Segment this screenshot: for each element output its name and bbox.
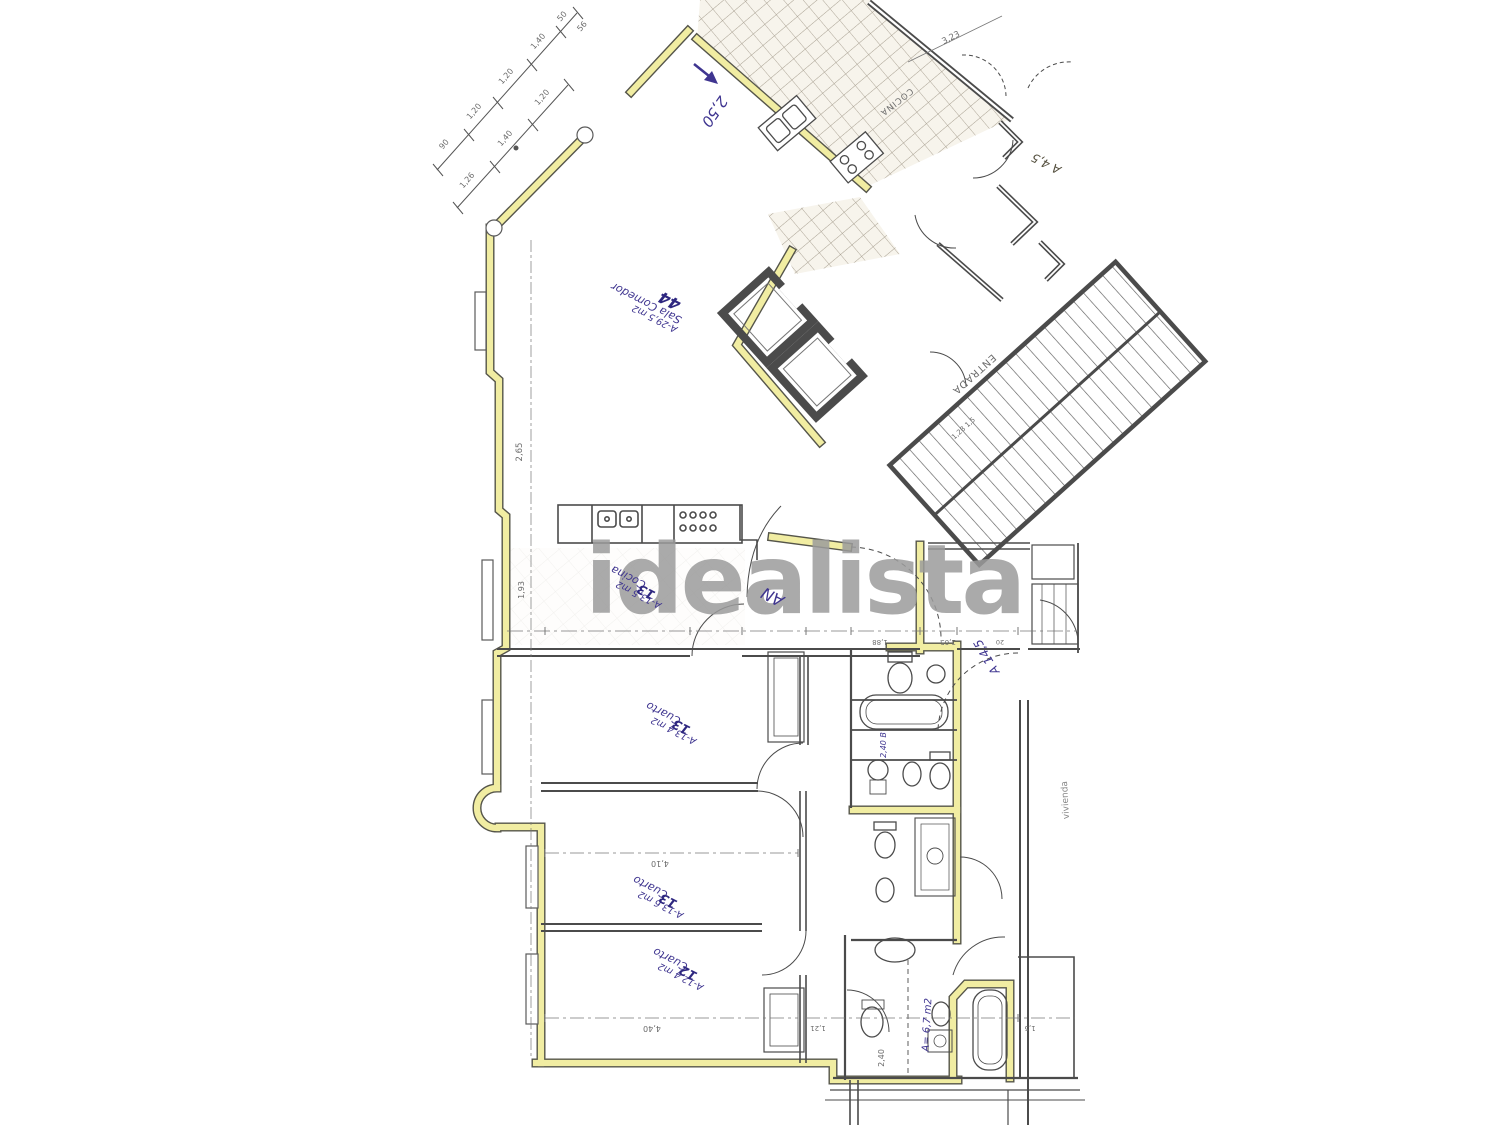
dim-410: 4,10	[651, 859, 669, 868]
chain-dim: 1,20	[465, 102, 483, 121]
bidet-icon	[932, 1002, 950, 1026]
bath-area-annotation: A= 6,7 m2	[921, 998, 935, 1053]
chain-dim: 90	[437, 138, 450, 152]
sink-icon	[868, 760, 888, 780]
ink-arrow-icon	[694, 64, 718, 84]
neighbor-area-annotation: A 4,5	[1029, 150, 1064, 177]
dim-20: 20	[996, 638, 1004, 646]
dimension-chain	[433, 7, 583, 214]
dim-240: 2,40	[877, 1049, 886, 1067]
chain-dim: 1,40	[496, 129, 514, 148]
toilet-tank-icon	[874, 822, 896, 830]
chain-dim: 50	[555, 10, 568, 24]
dim-188: 1,88	[872, 638, 888, 646]
bidet-icon	[903, 762, 921, 786]
toilet-icon	[888, 663, 912, 693]
corner-marker-icon	[486, 220, 502, 236]
toilet-icon	[930, 763, 950, 789]
sink-icon	[875, 938, 915, 962]
dim-15: 1,5	[1024, 1024, 1035, 1032]
bath-dim-annotation: 2,40 B	[879, 732, 888, 758]
dim-265: 2,65	[515, 443, 525, 462]
toilet-tank-icon	[930, 752, 950, 760]
floor-plan-screenshot: idealista 2,50 Sala Comedor A-29,5 m2 44…	[0, 0, 1500, 1125]
idealista-watermark: idealista	[585, 524, 1023, 636]
toilet-icon	[861, 1007, 883, 1037]
floor-plan-canvas: idealista 2,50 Sala Comedor A-29,5 m2 44…	[0, 0, 1500, 1125]
sink-icon	[927, 665, 945, 683]
vivienda-label: vivienda	[1060, 781, 1072, 820]
dim-annotation-250: 2,50	[698, 93, 732, 131]
elevator-shafts	[723, 266, 869, 417]
chain-dim: 1,26	[458, 171, 476, 190]
chain-dim: 1,20	[533, 88, 551, 107]
chain-dim: 1,40	[529, 32, 547, 51]
bidet-icon	[876, 878, 894, 902]
stairwell	[890, 262, 1206, 565]
dim-323: 3,23	[940, 29, 961, 47]
chain-dim: 1,20	[497, 67, 515, 86]
toilet-icon	[875, 832, 895, 858]
dim-56: 56	[575, 20, 588, 34]
dim-205: 2,05	[940, 638, 956, 646]
dim-193: 1,93	[517, 581, 526, 599]
corner-marker-icon	[577, 127, 593, 143]
dim-121: 1,21	[810, 1024, 826, 1032]
dim-440: 4,40	[643, 1024, 661, 1033]
